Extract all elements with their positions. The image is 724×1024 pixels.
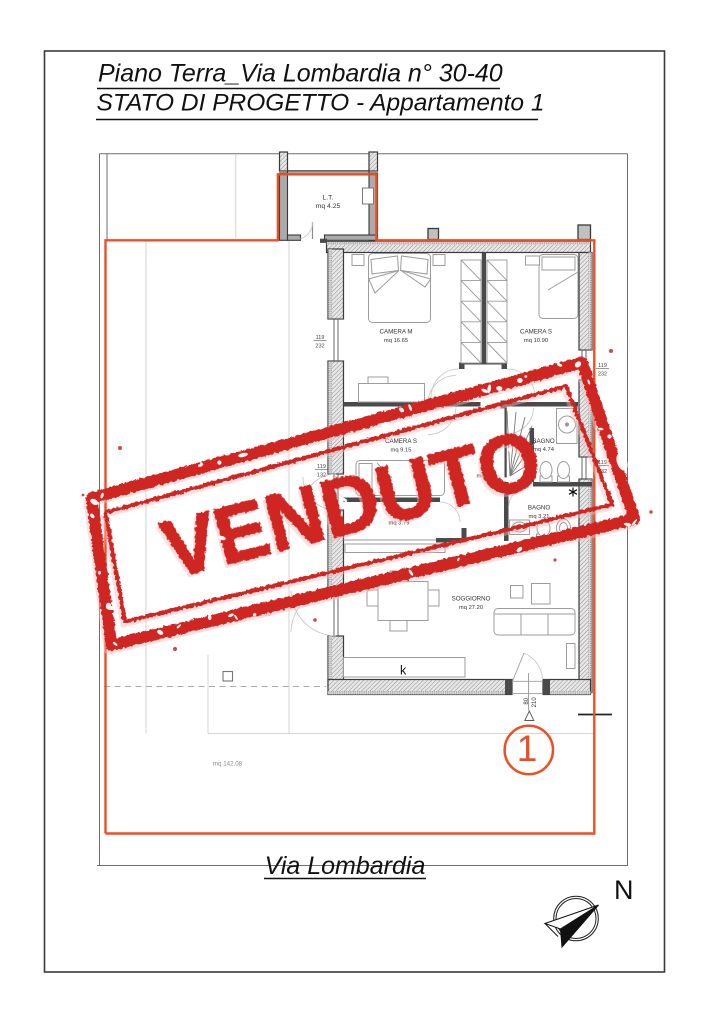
svg-text:1: 1 — [517, 728, 538, 769]
svg-text:mq 4.25: mq 4.25 — [316, 203, 341, 210]
svg-text:119: 119 — [316, 335, 325, 341]
svg-text:STATO DI PROGETTO - Appartamen: STATO DI PROGETTO - Appartamento 1 — [97, 90, 545, 117]
svg-text:CAMERA S: CAMERA S — [520, 329, 552, 336]
svg-text:BAGNO: BAGNO — [532, 438, 555, 445]
svg-text:N: N — [614, 875, 634, 905]
svg-text:L.T.: L.T. — [323, 195, 334, 202]
svg-text:SOGGIORNO: SOGGIORNO — [452, 596, 491, 603]
svg-text:Via Lombardia: Via Lombardia — [265, 852, 426, 880]
svg-text:232: 232 — [598, 372, 607, 378]
svg-text:mq 10.90: mq 10.90 — [524, 338, 548, 344]
svg-text:119: 119 — [598, 363, 607, 369]
svg-text:210: 210 — [532, 697, 538, 708]
svg-text:mq 27.20: mq 27.20 — [459, 605, 483, 611]
svg-text:Piano Terra_Via Lombardia n° 3: Piano Terra_Via Lombardia n° 30-40 — [98, 60, 503, 88]
svg-text:k: k — [400, 664, 407, 678]
svg-text:mq 142.08: mq 142.08 — [213, 761, 243, 768]
svg-text:80: 80 — [524, 697, 530, 704]
svg-text:CAMERA M: CAMERA M — [379, 329, 412, 336]
svg-text:232: 232 — [315, 344, 324, 350]
svg-text:mq 16.65: mq 16.65 — [384, 338, 408, 344]
